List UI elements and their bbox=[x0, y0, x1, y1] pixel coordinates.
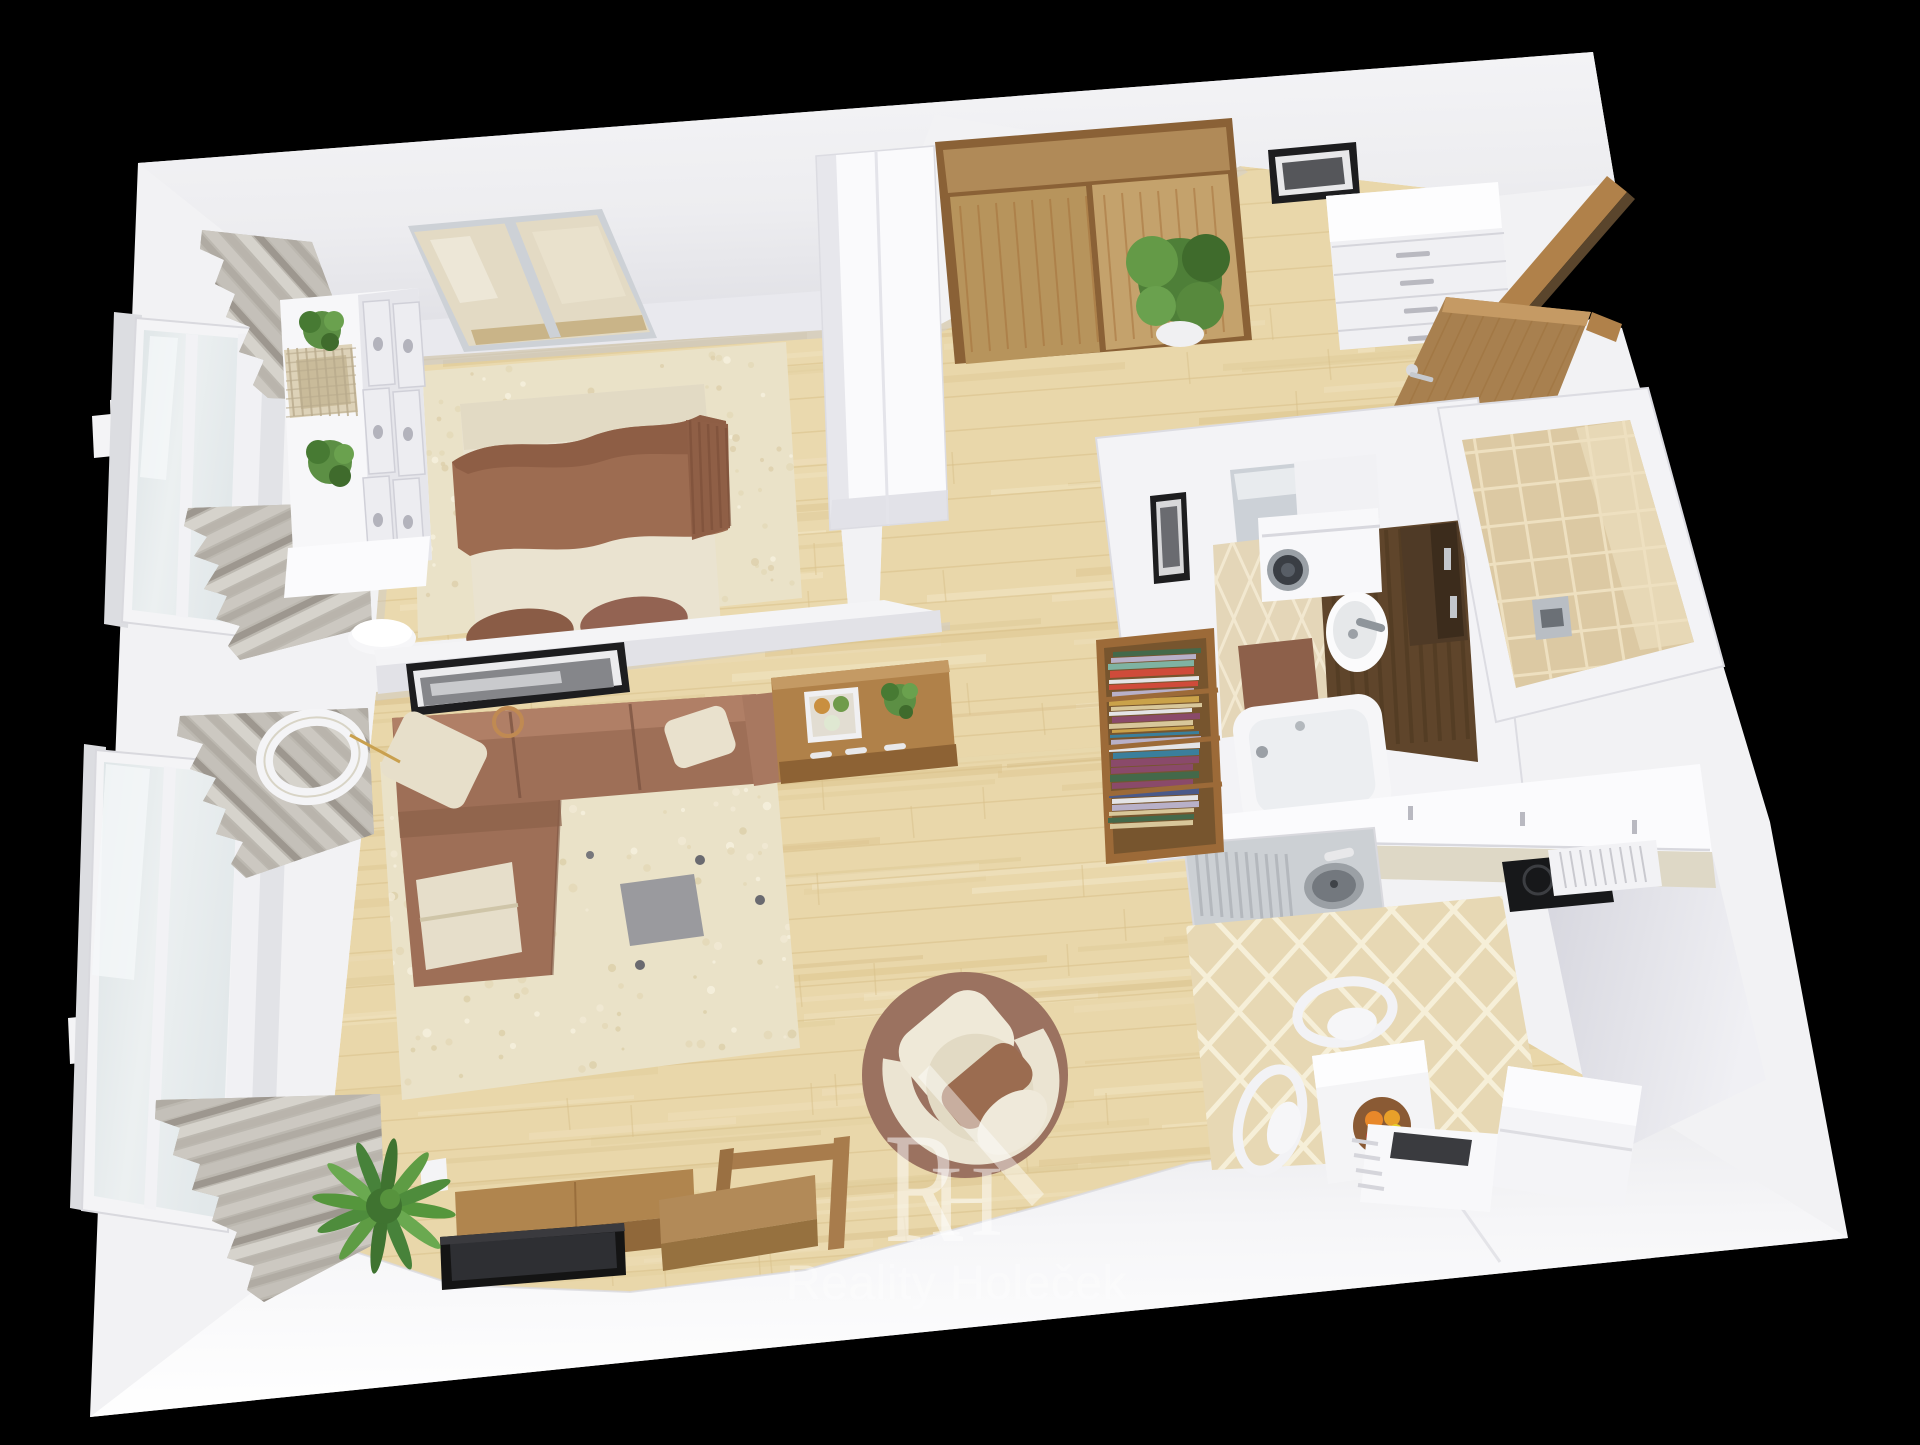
svg-text:H: H bbox=[930, 1145, 1003, 1257]
svg-text:Reality Holeček: Reality Holeček bbox=[786, 1257, 1127, 1310]
